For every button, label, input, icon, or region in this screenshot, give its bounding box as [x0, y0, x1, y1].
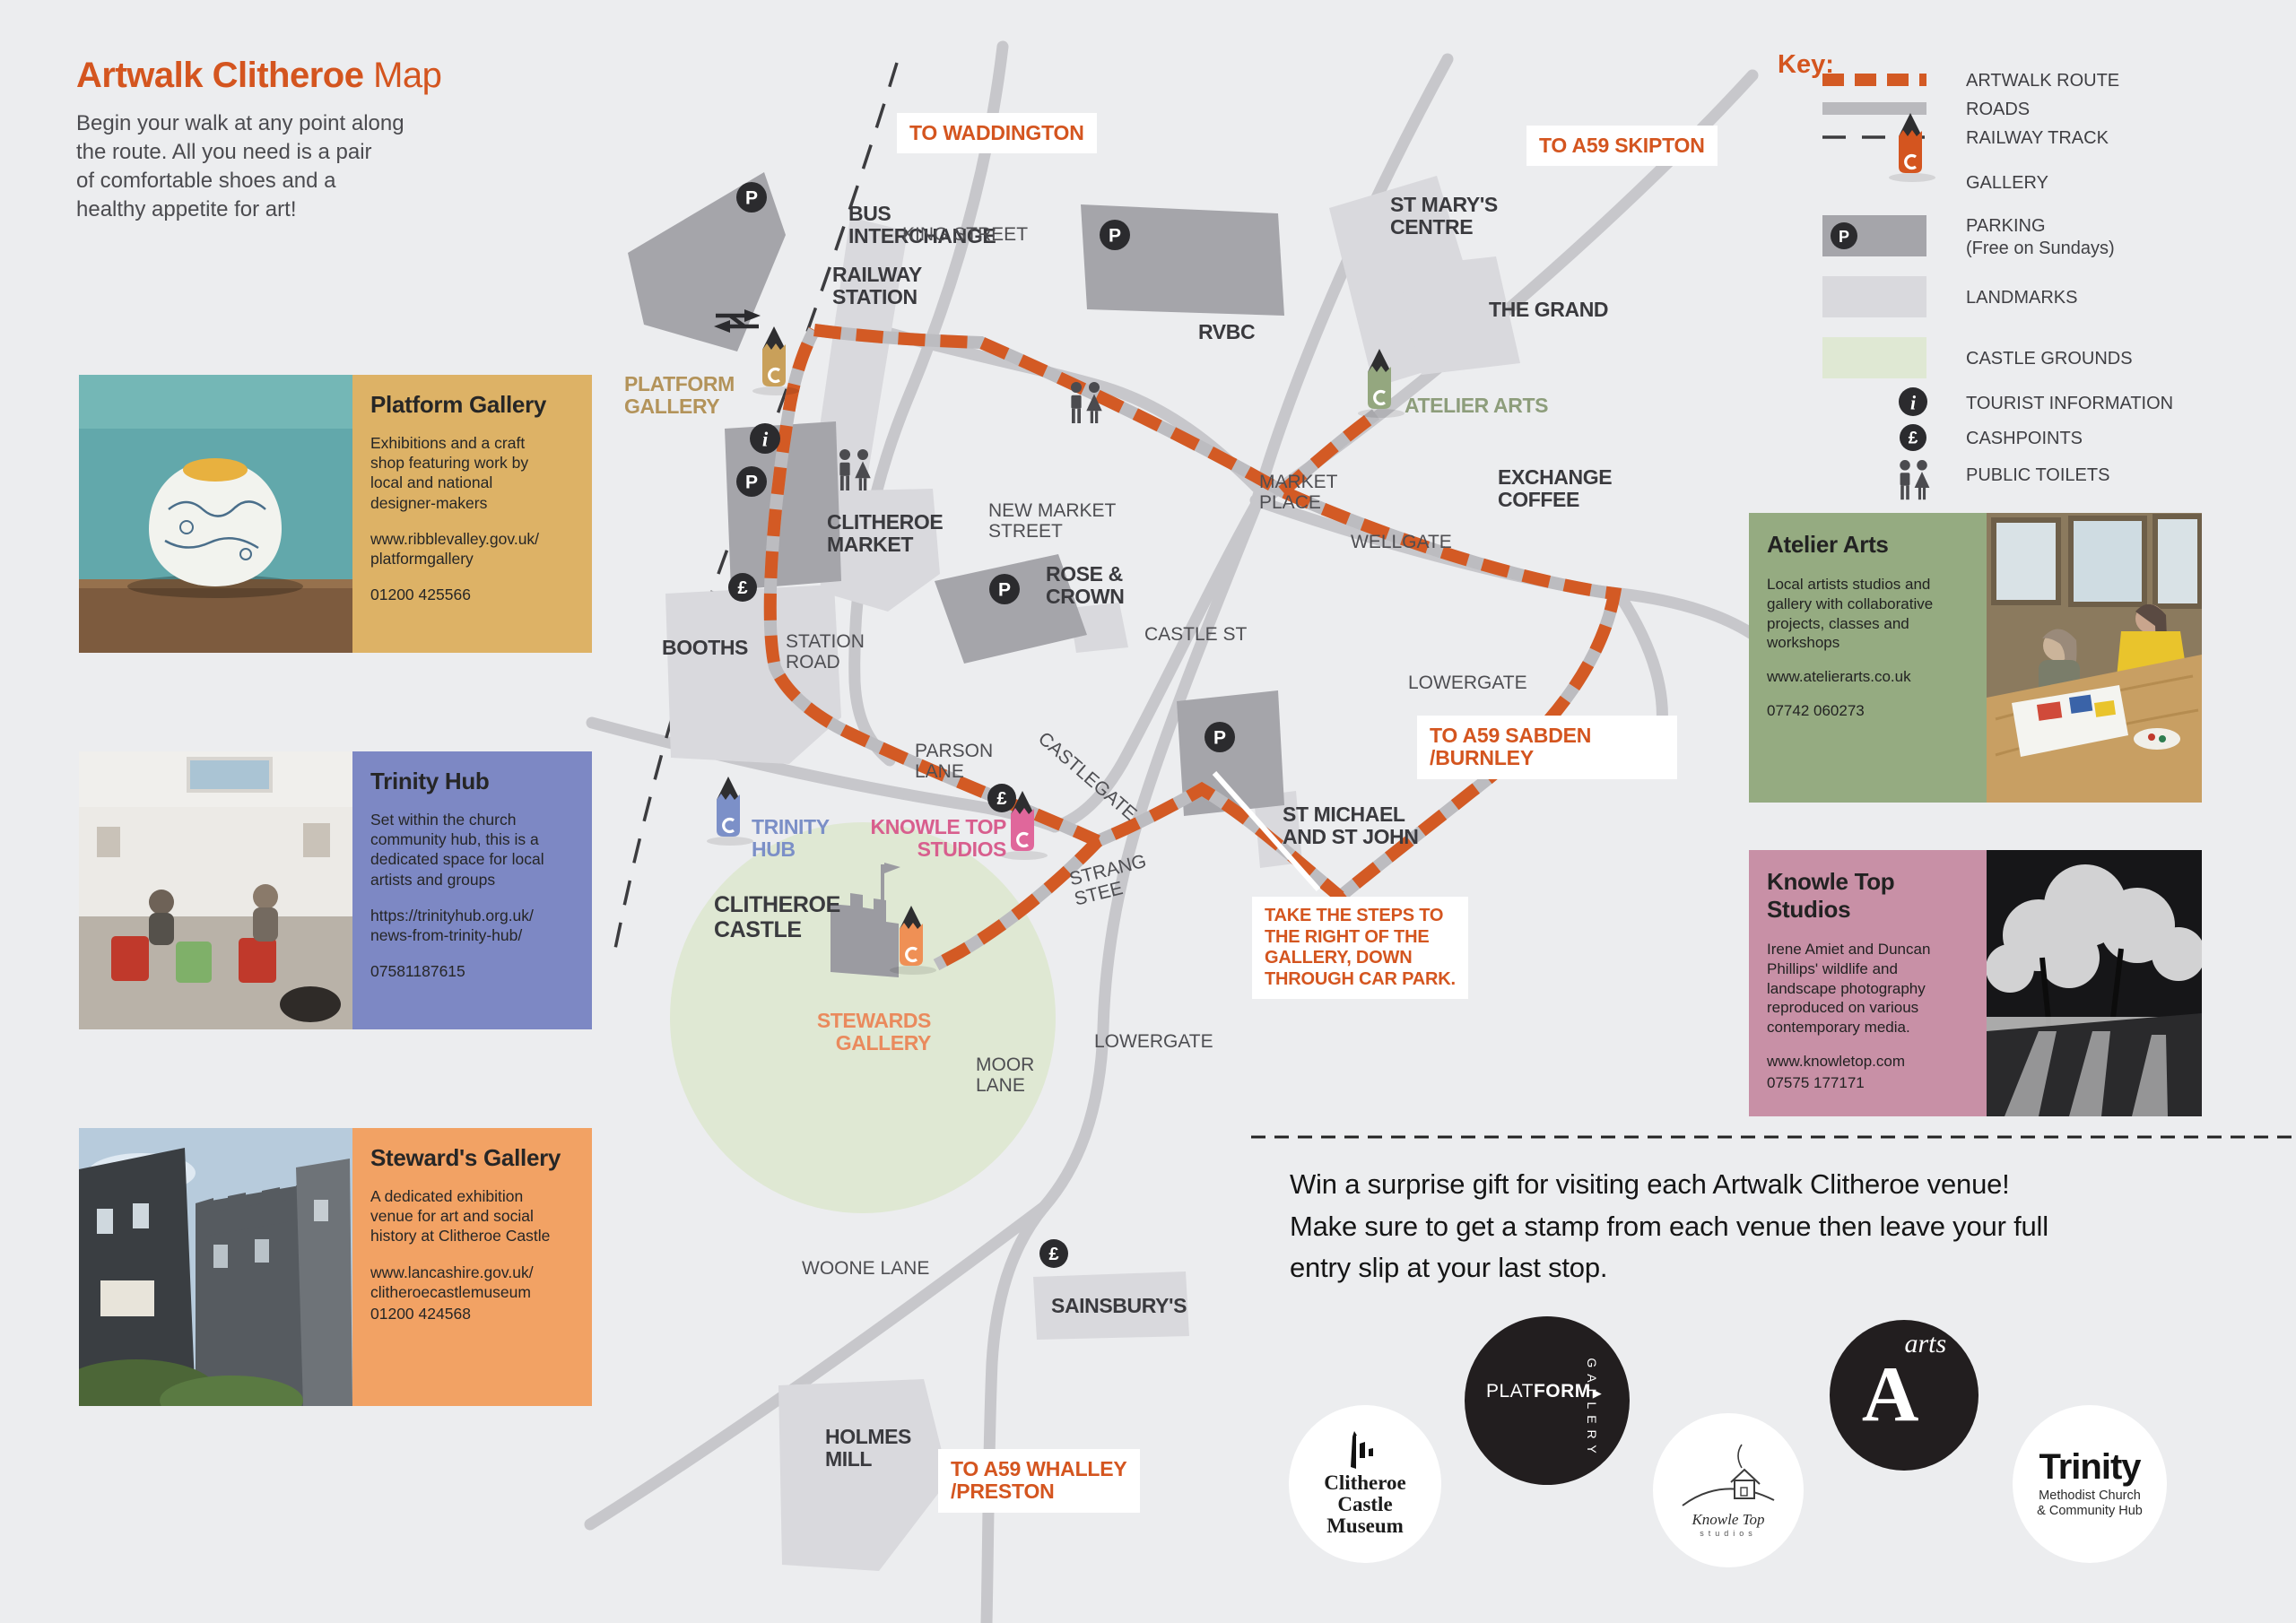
svg-text:i: i: [1910, 392, 1917, 414]
knowle-top-phone: 07575 177171: [1767, 1073, 1969, 1093]
logo-atelier-arts: A arts: [1830, 1320, 1979, 1471]
map-label-rose-and-crown: ROSE & CROWN: [1046, 563, 1124, 609]
platform-gallery-desc: Exhibitions and a craft shop featuring w…: [370, 433, 574, 513]
svg-text:£: £: [1909, 430, 1918, 448]
map-label-to-a59-whalley-preston: TO A59 WHALLEY /PRESTON: [938, 1449, 1140, 1513]
key-swatches: P i £: [1822, 80, 1935, 499]
stewards-gallery-desc: A dedicated exhibition venue for art and…: [370, 1186, 574, 1246]
key-title: Key:: [1778, 50, 1834, 80]
platform-gallery-info: Platform Gallery Exhibitions and a craft…: [352, 375, 592, 653]
artwalk-clitheroe-map-page: P P P P P i £ £ £: [0, 0, 2296, 1623]
card-knowle-top-studios: Knowle Top Studios Irene Amiet and Dunca…: [1749, 850, 2202, 1116]
map-label-exchange-coffee: EXCHANGE COFFEE: [1498, 466, 1612, 512]
atelier-arts-photo: [1987, 513, 2202, 803]
platform-gallery-photo: [79, 375, 352, 653]
map-label-wellgate: WELLGATE: [1351, 532, 1452, 552]
map-label-rvbc: RVBC: [1198, 321, 1255, 343]
map-label-booths: BOOTHS: [662, 637, 748, 659]
key-label-roads: ROADS: [1966, 99, 2030, 121]
atelier-arts-desc: Local artists studios and gallery with c…: [1767, 575, 1969, 653]
key-label-tourist-information: TOURIST INFORMATION: [1966, 393, 2173, 415]
platform-logo-plat: PLAT: [1486, 1381, 1534, 1402]
knowle-top-photo: [1987, 850, 2202, 1116]
key-label-landmarks: LANDMARKS: [1966, 287, 2077, 309]
atelier-arts-phone: 07742 060273: [1767, 701, 1969, 721]
card-trinity-hub: Trinity Hub Set within the church commun…: [79, 751, 592, 1029]
map-label-trinity-hub: TRINITY HUB: [752, 816, 830, 862]
castle-museum-glyph: [1345, 1431, 1385, 1472]
map-label-woone-lane: WOONE LANE: [802, 1258, 929, 1279]
map-label-st-michael-and-st-john: ST MICHAEL AND ST JOHN: [1283, 803, 1419, 849]
arts-logo-a: A: [1862, 1359, 1919, 1430]
stewards-gallery-info: Steward's Gallery A dedicated exhibition…: [352, 1128, 592, 1406]
map-label-sainsburys: SAINSBURY'S: [1051, 1295, 1187, 1317]
platform-logo-gallery-vertical: GALLERY: [1585, 1358, 1599, 1459]
stewards-gallery-phone: 01200 424568: [370, 1304, 574, 1324]
tourist-info-icon: i: [750, 423, 780, 454]
key-label-railway-track: RAILWAY TRACK: [1966, 127, 2109, 150]
map-label-clitheroe-market: CLITHEROE MARKET: [827, 511, 943, 557]
map-label-parson-lane: PARSON LANE: [915, 741, 993, 782]
trinity-logo-name: Trinity: [2039, 1449, 2140, 1485]
trinity-hub-phone: 07581187615: [370, 961, 574, 981]
page-title-bold: Artwalk Clitheroe: [76, 56, 363, 95]
atelier-arts-info: Atelier Arts Local artists studios and g…: [1749, 513, 1987, 803]
landmark-booths: [665, 585, 841, 764]
trinity-hub-pencil-icon: [707, 777, 753, 846]
map-label-stewards-gallery: STEWARDS GALLERY: [787, 1010, 931, 1055]
page-title: Artwalk Clitheroe Map: [76, 56, 441, 96]
svg-text:£: £: [996, 789, 1006, 809]
logo-knowle-top-studios: Knowle Top studios: [1653, 1413, 1804, 1567]
platform-logo-form: FORM: [1534, 1381, 1591, 1402]
map-label-atelier-arts: ATELIER ARTS: [1405, 395, 1548, 417]
map-label-moor-lane: MOOR LANE: [976, 1055, 1034, 1096]
atelier-arts-web: www.atelierarts.co.uk: [1767, 667, 1969, 687]
arts-logo-wordmark: A arts: [1862, 1359, 1946, 1430]
map-label-to-a59-sabden-burnley: TO A59 SABDEN /BURNLEY: [1417, 716, 1677, 779]
trinity-hub-info: Trinity Hub Set within the church commun…: [352, 751, 592, 1029]
intro-text: Begin your walk at any point along the r…: [76, 109, 417, 224]
key-label-cashpoints: CASHPOINTS: [1966, 428, 2083, 450]
svg-text:£: £: [1048, 1245, 1058, 1264]
logo-platform-gallery: PLATFORM▶ GALLERY: [1465, 1316, 1630, 1485]
knowle-top-title: Knowle Top Studios: [1767, 868, 1969, 924]
key-label-artwalk-route: ARTWALK ROUTE: [1966, 70, 2119, 92]
page-title-light: Map: [363, 56, 441, 95]
trinity-hub-desc: Set within the church community hub, thi…: [370, 810, 574, 890]
stewards-gallery-title: Steward's Gallery: [370, 1144, 574, 1172]
stewards-gallery-web: www.lancashire.gov.uk/ clitheroecastlemu…: [370, 1263, 574, 1302]
castle-museum-line3: Museum: [1326, 1515, 1404, 1537]
svg-text:P: P: [745, 188, 758, 209]
svg-text:P: P: [998, 580, 1011, 601]
svg-text:P: P: [1213, 728, 1226, 749]
map-label-market-place: MARKET PLACE: [1259, 472, 1338, 513]
card-platform-gallery: Platform Gallery Exhibitions and a craft…: [79, 375, 592, 653]
trinity-hub-title: Trinity Hub: [370, 768, 574, 795]
key-label-gallery: GALLERY: [1966, 172, 2048, 195]
knowle-logo-name: Knowle Top: [1692, 1511, 1764, 1529]
knowle-top-web: www.knowletop.com: [1767, 1052, 1969, 1072]
map-note-take-the-steps: TAKE THE STEPS TO THE RIGHT OF THE GALLE…: [1252, 897, 1468, 999]
trinity-hub-web: https://trinityhub.org.uk/ news-from-tri…: [370, 906, 574, 945]
map-label-platform-gallery: PLATFORM GALLERY: [624, 373, 735, 419]
svg-text:£: £: [737, 578, 747, 598]
svg-text:i: i: [762, 429, 769, 451]
svg-text:P: P: [1109, 226, 1121, 247]
arts-logo-word: arts: [1904, 1329, 1946, 1359]
road-sabden: [1620, 595, 1662, 735]
atelier-arts-title: Atelier Arts: [1767, 531, 1969, 559]
map-label-the-grand: THE GRAND: [1489, 299, 1608, 321]
knowle-top-info: Knowle Top Studios Irene Amiet and Dunca…: [1749, 850, 1987, 1116]
map-label-clitheroe-castle: CLITHEROE CASTLE: [714, 893, 840, 942]
svg-text:P: P: [745, 473, 758, 493]
key-label-parking: PARKING (Free on Sundays): [1966, 215, 2115, 260]
promo-text: Win a surprise gift for visiting each Ar…: [1290, 1164, 2296, 1289]
map-label-lowergate-upper: LOWERGATE: [1408, 673, 1527, 693]
logo-clitheroe-castle-museum: Clitheroe Castle Museum: [1289, 1405, 1441, 1563]
map-label-lowergate-lower: LOWERGATE: [1094, 1031, 1213, 1052]
platform-gallery-phone: 01200 425566: [370, 585, 574, 604]
platform-gallery-web: www.ribblevalley.gov.uk/ platformgallery: [370, 529, 574, 568]
map-label-railway-station: RAILWAY STATION: [832, 264, 922, 309]
map-label-st-marys-centre: ST MARY'S CENTRE: [1390, 194, 1498, 239]
map-label-to-a59-skipton: TO A59 SKIPTON: [1526, 126, 1718, 166]
map-label-knowle-top-studios: KNOWLE TOP STUDIOS: [834, 816, 1006, 862]
key-label-public-toilets: PUBLIC TOILETS: [1966, 464, 2109, 487]
stewards-gallery-photo: [79, 1128, 352, 1406]
logo-trinity: Trinity Methodist Church & Community Hub: [2013, 1405, 2167, 1563]
knowle-top-desc: Irene Amiet and Duncan Phillips' wildlif…: [1767, 940, 1969, 1037]
map-label-castle-st: CASTLE ST: [1144, 624, 1247, 645]
castle-museum-line1: Clitheroe: [1324, 1472, 1406, 1494]
platform-gallery-title: Platform Gallery: [370, 391, 574, 419]
knowle-logo-house-icon: [1679, 1443, 1778, 1509]
landmark-holmes-mill: [778, 1379, 949, 1571]
map-label-king-street: KING STREET: [902, 224, 1028, 245]
map-label-station-road: STATION ROAD: [786, 631, 865, 673]
trinity-hub-photo: [79, 751, 352, 1029]
knowle-logo-sub: studios: [1700, 1529, 1757, 1538]
trinity-logo-sub: Methodist Church & Community Hub: [2037, 1488, 2143, 1520]
map-label-holmes-mill: HOLMES MILL: [825, 1426, 911, 1471]
key-label-castle-grounds: CASTLE GROUNDS: [1966, 348, 2133, 370]
map-label-new-market-street: NEW MARKET STREET: [988, 500, 1116, 542]
castle-museum-line2: Castle: [1337, 1494, 1392, 1515]
card-atelier-arts: Atelier Arts Local artists studios and g…: [1749, 513, 2202, 803]
card-stewards-gallery: Steward's Gallery A dedicated exhibition…: [79, 1128, 592, 1406]
svg-text:P: P: [1839, 228, 1849, 246]
map-label-to-waddington: TO WADDINGTON: [897, 113, 1097, 153]
